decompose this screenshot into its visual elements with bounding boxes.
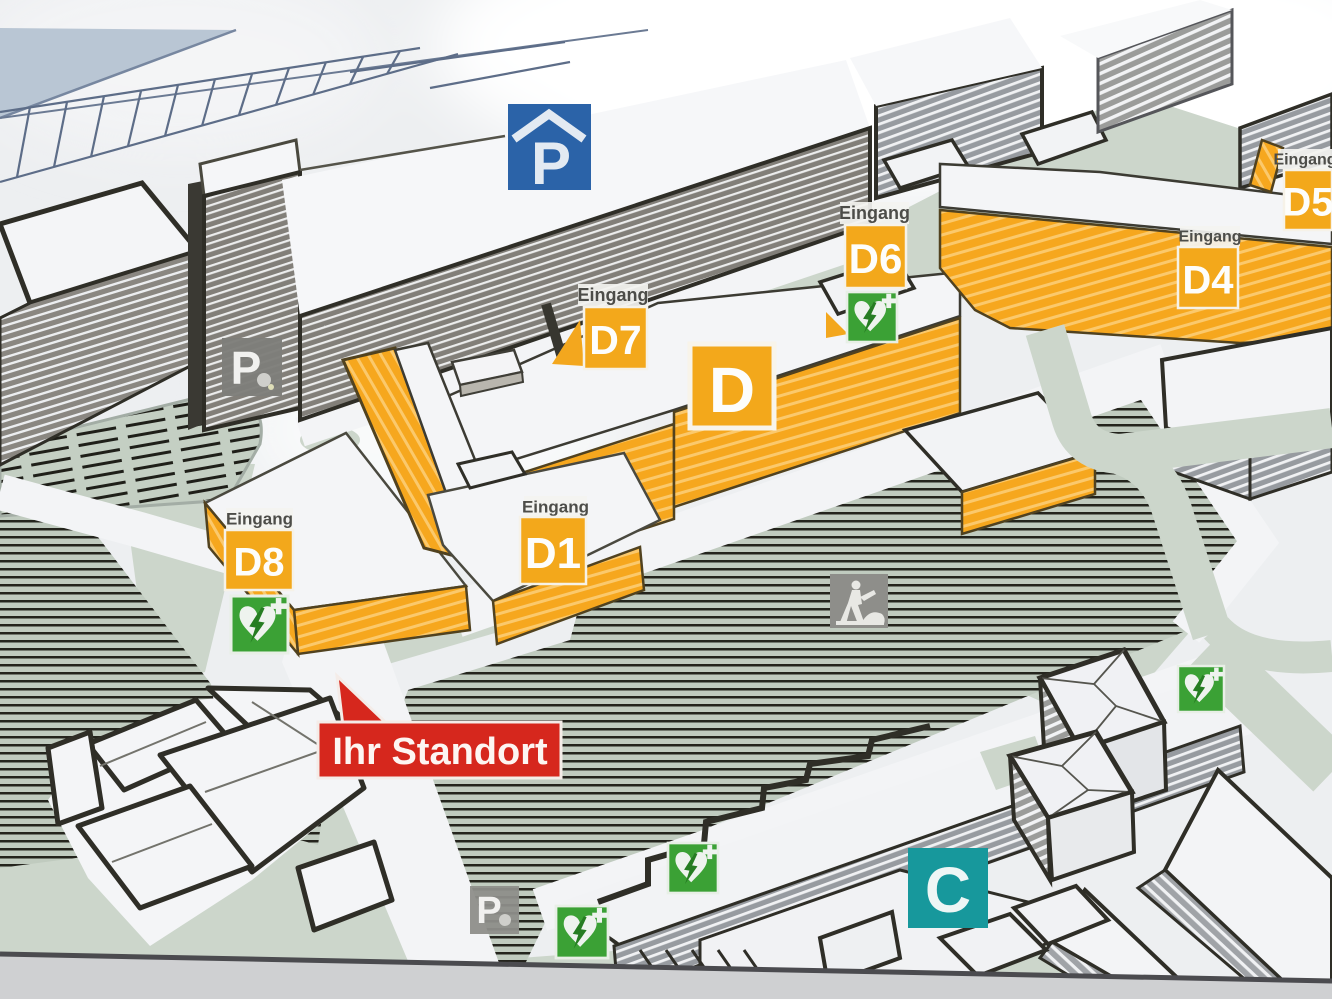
svg-text:P: P: [476, 890, 501, 932]
svg-text:C: C: [925, 854, 971, 926]
svg-text:Eingang: Eingang: [578, 285, 649, 305]
svg-text:P: P: [531, 130, 571, 197]
svg-text:D8: D8: [233, 541, 284, 585]
svg-text:D5: D5: [1282, 181, 1332, 225]
svg-text:D1: D1: [525, 529, 581, 578]
svg-text:Eingang: Eingang: [839, 203, 910, 223]
svg-text:Eingang: Eingang: [226, 509, 293, 528]
svg-text:Ihr Standort: Ihr Standort: [332, 731, 548, 773]
svg-text:Eingang: Eingang: [522, 497, 589, 516]
svg-text:D: D: [709, 354, 755, 426]
svg-text:D6: D6: [849, 235, 903, 282]
svg-text:D7: D7: [589, 317, 641, 363]
svg-text:P: P: [231, 342, 262, 394]
svg-text:Eingang: Eingang: [1178, 229, 1241, 246]
svg-text:Eingang: Eingang: [1273, 152, 1332, 169]
svg-text:D4: D4: [1182, 258, 1234, 302]
